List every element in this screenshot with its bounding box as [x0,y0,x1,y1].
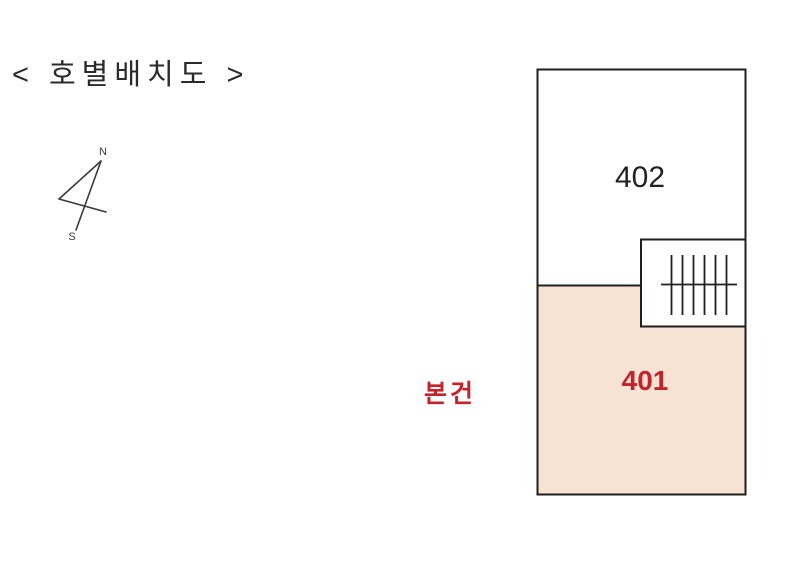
unit-layout-page: < 호별배치도 > N S 402 401 본건 [0,0,800,566]
compass-south-label: S [64,231,80,243]
page-title: < 호별배치도 > [12,51,249,93]
unit-401-number: 401 [590,365,700,397]
subject-property-label: 본건 [396,374,504,410]
compass-north-label: N [95,146,111,158]
unit-402-number: 402 [585,161,695,195]
floor-plan-group [538,70,746,495]
compass-group [59,161,106,230]
